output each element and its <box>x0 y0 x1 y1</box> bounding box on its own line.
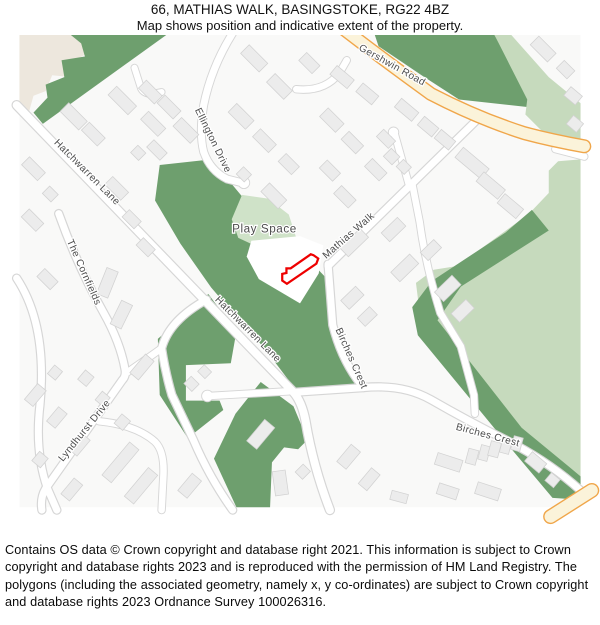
page-subtitle: Map shows position and indicative extent… <box>0 18 600 33</box>
page-title: 66, MATHIAS WALK, BASINGSTOKE, RG22 4BZ <box>0 2 600 18</box>
road-notch-stub <box>209 391 288 396</box>
map-canvas: Gershwin Road Hatchwarren Lane Hatchwarr… <box>0 35 600 540</box>
copyright-notice: Contains OS data © Crown copyright and d… <box>0 540 600 625</box>
property-map-page: 66, MATHIAS WALK, BASINGSTOKE, RG22 4BZ … <box>0 0 600 625</box>
area-label-play-space: Play Space <box>232 222 297 235</box>
os-map: Gershwin Road Hatchwarren Lane Hatchwarr… <box>0 35 600 540</box>
map-header: 66, MATHIAS WALK, BASINGSTOKE, RG22 4BZ … <box>0 0 600 35</box>
